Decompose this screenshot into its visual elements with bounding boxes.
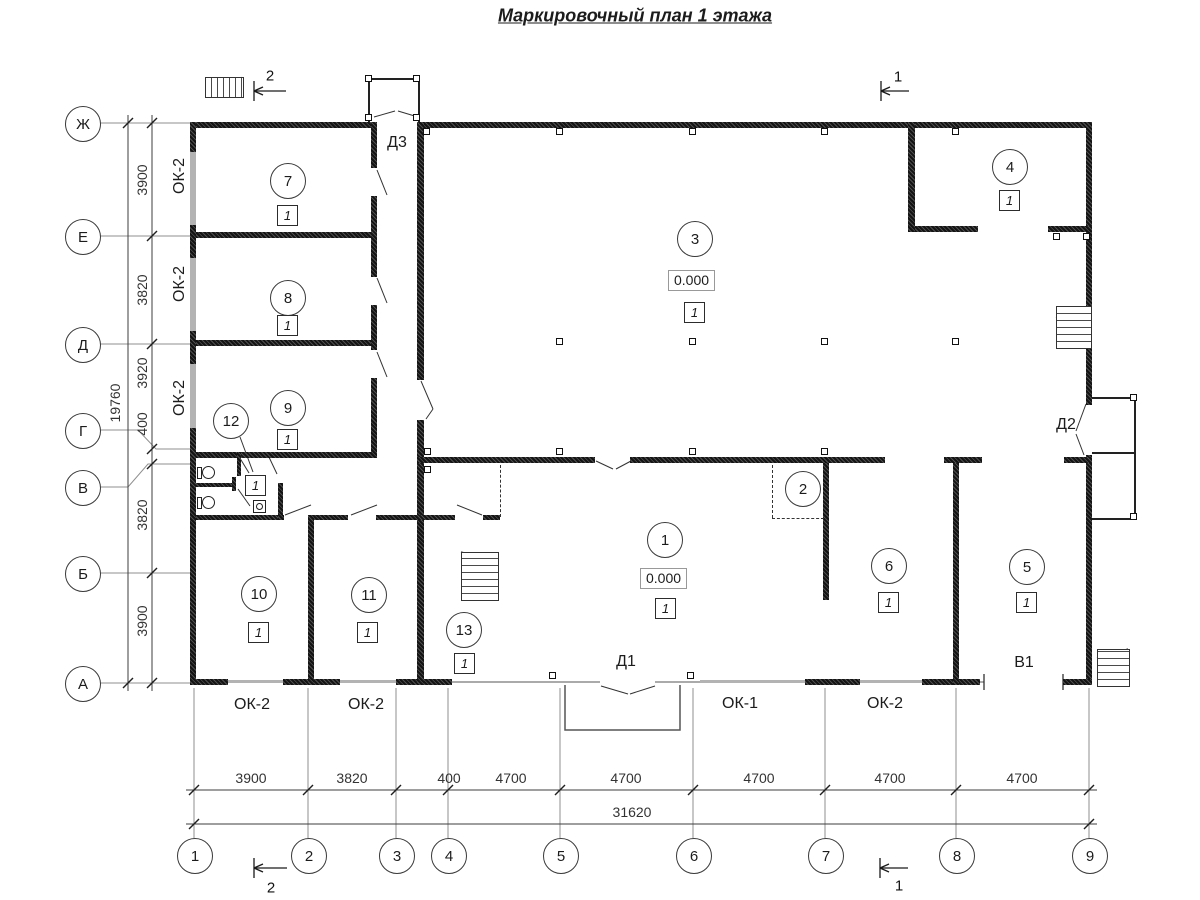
toilet-bowl-2 — [202, 496, 215, 509]
wall-bottom-pier-3 — [396, 679, 452, 685]
room-9-category: 1 — [277, 429, 298, 450]
axis-4: 4 — [431, 838, 467, 874]
toilet-bowl-1 — [202, 466, 215, 479]
wall-wc-stub — [232, 477, 236, 491]
column — [556, 338, 563, 345]
room13-dashed-right — [500, 465, 501, 517]
room-12-category: 1 — [245, 475, 266, 496]
dim-bottom-6: 4700 — [743, 770, 774, 786]
axis-zh: Ж — [65, 106, 101, 142]
room-8-circle: 8 — [270, 280, 306, 316]
axis-3: 3 — [379, 838, 415, 874]
section-label-2-top: 2 — [266, 68, 274, 85]
room-10-category: 1 — [248, 622, 269, 643]
room-9-circle: 9 — [270, 390, 306, 426]
axis-7: 7 — [808, 838, 844, 874]
dim-left-6: 3900 — [134, 605, 150, 636]
wall-rooms789-4 — [371, 378, 377, 455]
room-1-circle: 1 — [647, 522, 683, 558]
column — [821, 338, 828, 345]
room-3-elevation: 0.000 — [668, 270, 715, 291]
column — [687, 672, 694, 679]
axis-d: Д — [65, 327, 101, 363]
wall-wc-bottom — [196, 515, 283, 520]
window-bottom-3 — [700, 680, 805, 683]
axis-1: 1 — [177, 838, 213, 874]
dim-bottom-2: 3820 — [336, 770, 367, 786]
axis-8: 8 — [939, 838, 975, 874]
wall-axis-d — [196, 340, 371, 346]
vestibule-d3-corner-2 — [413, 75, 420, 82]
room2-dashed-left — [772, 465, 773, 518]
column — [952, 128, 959, 135]
room-5-category: 1 — [1016, 592, 1037, 613]
window-bottom-2 — [340, 680, 396, 683]
window-label-ok2-left-3: ОК-2 — [171, 380, 189, 416]
door-label-d2: Д2 — [1056, 416, 1076, 434]
room2-dashed-bottom — [772, 518, 824, 519]
wall-room4-bottom-2 — [1048, 226, 1092, 232]
column — [1083, 233, 1090, 240]
dim-left-4: 400 — [134, 412, 150, 435]
axis-a: А — [65, 666, 101, 702]
dim-left-1: 3900 — [134, 164, 150, 195]
dim-left-5: 3820 — [134, 499, 150, 530]
room-7-circle: 7 — [270, 163, 306, 199]
wall-axis-e — [196, 232, 371, 238]
dim-bottom-5: 4700 — [610, 770, 641, 786]
window-left-2 — [190, 258, 196, 331]
wall-room9-bottom — [196, 452, 377, 458]
section-label-2-bottom: 2 — [267, 880, 275, 897]
page-title: Маркировочный план 1 этажа — [498, 6, 772, 27]
vestibule-d2 — [1092, 397, 1136, 520]
column — [549, 672, 556, 679]
wall-top-right — [419, 122, 1092, 128]
wall-bottom-pier-6 — [1063, 679, 1092, 685]
wall-bottom-pier-1 — [190, 679, 228, 685]
dim-left-3: 3920 — [134, 357, 150, 388]
dimension-lines — [128, 115, 1097, 824]
window-label-ok2-bottom-3: ОК-2 — [867, 695, 903, 713]
stairs-hall-right — [1056, 306, 1092, 349]
room-7-category: 1 — [277, 205, 298, 226]
wall-rooms789-3 — [371, 305, 377, 350]
room-11-circle: 11 — [351, 577, 387, 613]
dim-bottom-3: 400 — [437, 770, 460, 786]
axis-g: Г — [65, 413, 101, 449]
wall-wc-partition — [237, 452, 241, 476]
column — [424, 466, 431, 473]
column — [821, 448, 828, 455]
axis-2: 2 — [291, 838, 327, 874]
room-4-circle: 4 — [992, 149, 1028, 185]
dim-left-2: 3820 — [134, 274, 150, 305]
vestibule-d3-corner-4 — [413, 114, 420, 121]
room-12-circle: 12 — [213, 403, 249, 439]
column — [1053, 233, 1060, 240]
window-label-ok2-left-2: ОК-2 — [171, 266, 189, 302]
door-label-d1: Д1 — [616, 653, 636, 671]
dim-bottom-8: 4700 — [1006, 770, 1037, 786]
v1-opening-ticks — [984, 674, 1063, 690]
wall-row-1 — [278, 515, 284, 520]
plan-linework — [0, 0, 1200, 900]
room-4-category: 1 — [999, 190, 1020, 211]
window-left-1 — [190, 152, 196, 225]
floor-plan: 7 1 8 1 9 1 12 1 3 0.000 1 4 1 2 1 0.000… — [0, 0, 1200, 900]
wall-room4-bottom-1 — [915, 226, 978, 232]
column — [821, 128, 828, 135]
column — [952, 338, 959, 345]
window-bottom-1 — [228, 680, 283, 683]
room-1-elevation: 0.000 — [640, 568, 687, 589]
window-label-ok2-bottom-2: ОК-2 — [348, 696, 384, 714]
wall-room2 — [823, 463, 829, 600]
gate-label-v1: В1 — [1014, 654, 1034, 672]
window-label-ok2-left-1: ОК-2 — [171, 158, 189, 194]
vestibule-d2-corner-1 — [1130, 394, 1137, 401]
room-6-category: 1 — [878, 592, 899, 613]
wall-wc-divider — [196, 483, 236, 487]
dim-bottom-4: 4700 — [495, 770, 526, 786]
wall-room4-left — [908, 122, 915, 232]
wall-rooms789-2 — [371, 196, 377, 277]
window-label-ok2-bottom-1: ОК-2 — [234, 696, 270, 714]
wall-room6-5 — [953, 463, 959, 685]
vestibule-d3-corner-3 — [365, 114, 372, 121]
room-13-circle: 13 — [446, 612, 482, 648]
sink-basin — [256, 503, 263, 510]
room-8-category: 1 — [277, 315, 298, 336]
wall-top-left — [190, 122, 373, 128]
dim-bottom-7: 4700 — [874, 770, 905, 786]
column — [424, 448, 431, 455]
wall-hall-south-1 — [417, 457, 595, 463]
room-10-circle: 10 — [241, 576, 277, 612]
wall-rooms789-1 — [371, 122, 377, 168]
vestibule-d2-divider — [1092, 452, 1136, 454]
stair-arrows — [211, 77, 1128, 682]
room-5-circle: 5 — [1009, 549, 1045, 585]
stairs-top-left — [205, 77, 244, 98]
wall-row-2 — [312, 515, 348, 520]
axis-e: Е — [65, 219, 101, 255]
room-13-category: 1 — [454, 653, 475, 674]
wall-row-3 — [376, 515, 455, 520]
window-label-ok1-bottom: ОК-1 — [722, 695, 758, 713]
column — [423, 128, 430, 135]
door-label-d3: Д3 — [387, 134, 407, 152]
wall-room10-11 — [308, 515, 314, 685]
axis-b: Б — [65, 556, 101, 592]
dimension-ticks — [123, 118, 1094, 829]
wall-bottom-pier-4 — [805, 679, 860, 685]
section-label-1-bottom: 1 — [895, 878, 903, 895]
section-label-1-top: 1 — [894, 69, 902, 86]
wall-row-4 — [483, 515, 500, 520]
window-bottom-4 — [860, 680, 922, 683]
axis-v: В — [65, 470, 101, 506]
axis-5: 5 — [543, 838, 579, 874]
vestibule-d3-corner-1 — [365, 75, 372, 82]
column — [556, 448, 563, 455]
wall-corridor-top — [417, 122, 424, 380]
dim-left-total: 19760 — [107, 384, 123, 423]
room-1-category: 1 — [655, 598, 676, 619]
room-2-circle: 2 — [785, 471, 821, 507]
room-3-category: 1 — [684, 302, 705, 323]
room-3-circle: 3 — [677, 221, 713, 257]
wall-bottom-pier-5 — [922, 679, 980, 685]
wall-room6-5-top — [944, 457, 982, 463]
stairs-room13 — [461, 552, 499, 601]
column — [689, 338, 696, 345]
column — [556, 128, 563, 135]
porch-outline — [565, 685, 680, 730]
axis-6: 6 — [676, 838, 712, 874]
wall-room5-stub — [1064, 457, 1092, 463]
axis-9: 9 — [1072, 838, 1108, 874]
window-left-3 — [190, 364, 196, 428]
column — [689, 128, 696, 135]
dim-bottom-total: 31620 — [613, 804, 652, 820]
wall-right-top — [1086, 122, 1092, 405]
dim-bottom-1: 3900 — [235, 770, 266, 786]
column — [689, 448, 696, 455]
vestibule-d2-corner-2 — [1130, 513, 1137, 520]
wall-hall-south-2 — [630, 457, 885, 463]
room-11-category: 1 — [357, 622, 378, 643]
room-6-circle: 6 — [871, 548, 907, 584]
stairs-bottom-right — [1097, 649, 1130, 687]
